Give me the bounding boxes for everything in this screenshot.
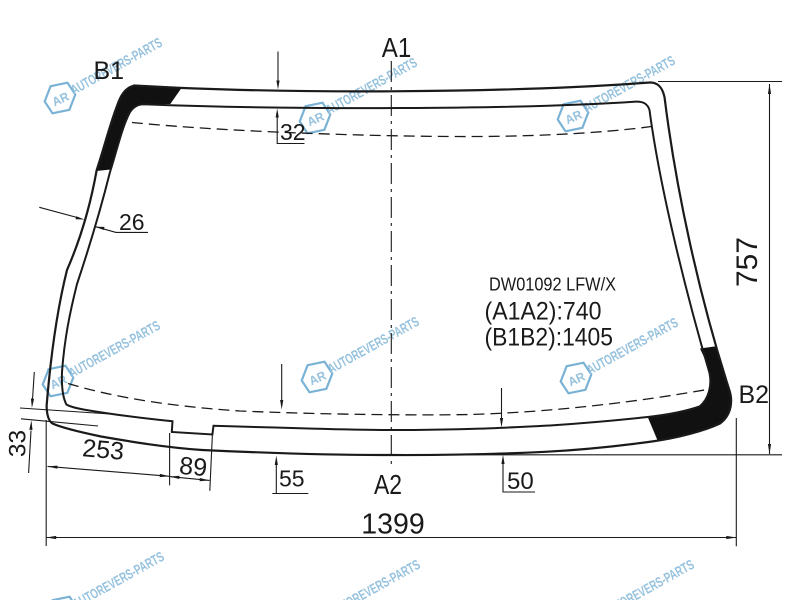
svg-text:253: 253 xyxy=(81,434,125,466)
svg-text:757: 757 xyxy=(731,237,764,287)
svg-text:33: 33 xyxy=(5,430,32,457)
svg-text:A1: A1 xyxy=(382,32,412,63)
svg-text:32: 32 xyxy=(280,119,306,145)
svg-text:(B1B2):1405: (B1B2):1405 xyxy=(485,324,614,352)
svg-text:DW01092 LFW/X: DW01092 LFW/X xyxy=(489,274,616,295)
svg-text:89: 89 xyxy=(178,452,208,482)
svg-text:50: 50 xyxy=(507,468,534,495)
svg-text:55: 55 xyxy=(279,466,305,492)
svg-text:B2: B2 xyxy=(739,381,770,409)
svg-text:26: 26 xyxy=(119,209,145,235)
svg-text:(A1A2):740: (A1A2):740 xyxy=(485,298,602,326)
svg-text:A2: A2 xyxy=(374,469,402,500)
svg-text:B1: B1 xyxy=(94,57,125,85)
svg-text:1399: 1399 xyxy=(361,509,424,541)
